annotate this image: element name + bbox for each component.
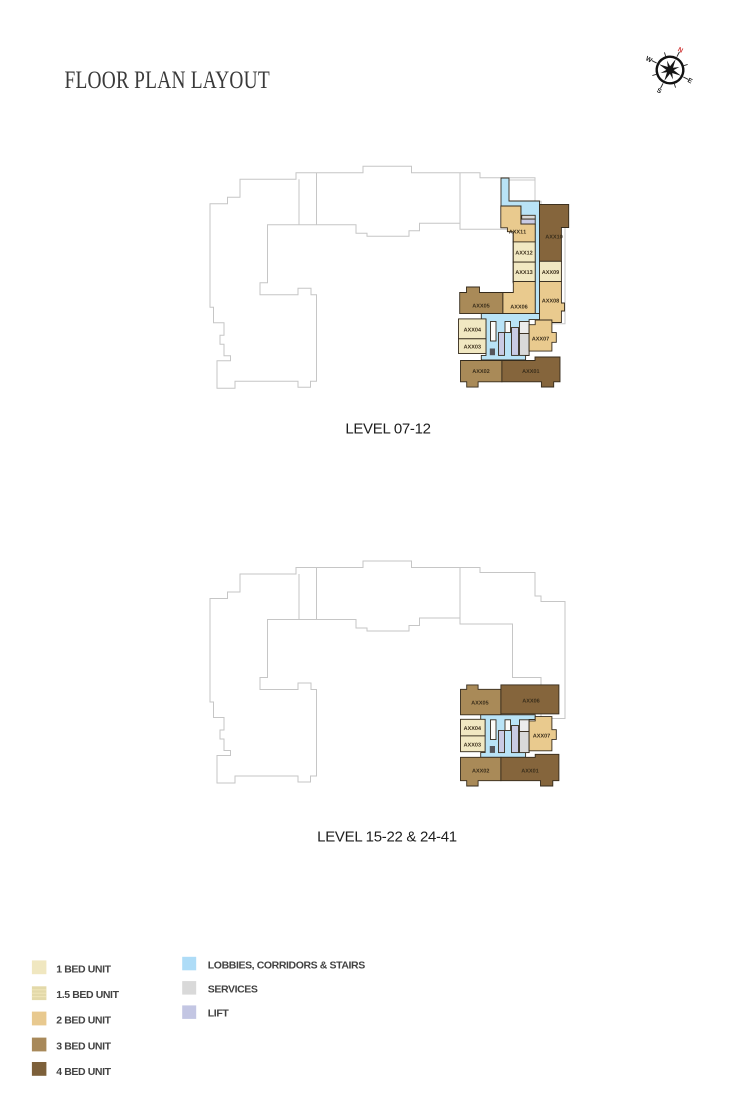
- svg-text:FLOOR PLAN LAYOUT: FLOOR PLAN LAYOUT: [65, 65, 270, 93]
- svg-text:4 BED UNIT: 4 BED UNIT: [56, 1066, 111, 1078]
- svg-text:LIFT: LIFT: [208, 1008, 230, 1020]
- svg-text:2 BED UNIT: 2 BED UNIT: [56, 1015, 111, 1027]
- svg-text:1 BED UNIT: 1 BED UNIT: [56, 964, 111, 976]
- svg-text:LOBBIES, CORRIDORS & STAIRS: LOBBIES, CORRIDORS & STAIRS: [208, 959, 365, 971]
- svg-text:SERVICES: SERVICES: [208, 983, 258, 995]
- svg-text:3 BED UNIT: 3 BED UNIT: [56, 1040, 111, 1052]
- svg-text:LEVEL 07-12: LEVEL 07-12: [345, 420, 430, 437]
- svg-text:LEVEL 15-22 & 24-41: LEVEL 15-22 & 24-41: [317, 829, 457, 846]
- svg-text:1.5 BED UNIT: 1.5 BED UNIT: [56, 989, 119, 1001]
